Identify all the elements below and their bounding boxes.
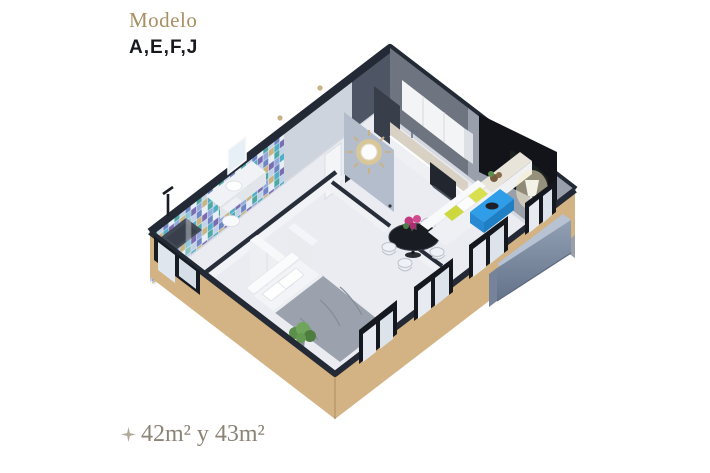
floorplan-card: Modelo A,E,F,J — [0, 0, 710, 473]
sparkle-icon — [121, 427, 136, 442]
floorplan-render — [0, 0, 710, 473]
sink-basin — [226, 181, 242, 191]
ceiling-light — [277, 115, 282, 120]
footer: 42m² y 43m² — [121, 421, 265, 448]
ceiling-light — [317, 85, 322, 90]
area-label: 42m² y 43m² — [141, 421, 265, 448]
